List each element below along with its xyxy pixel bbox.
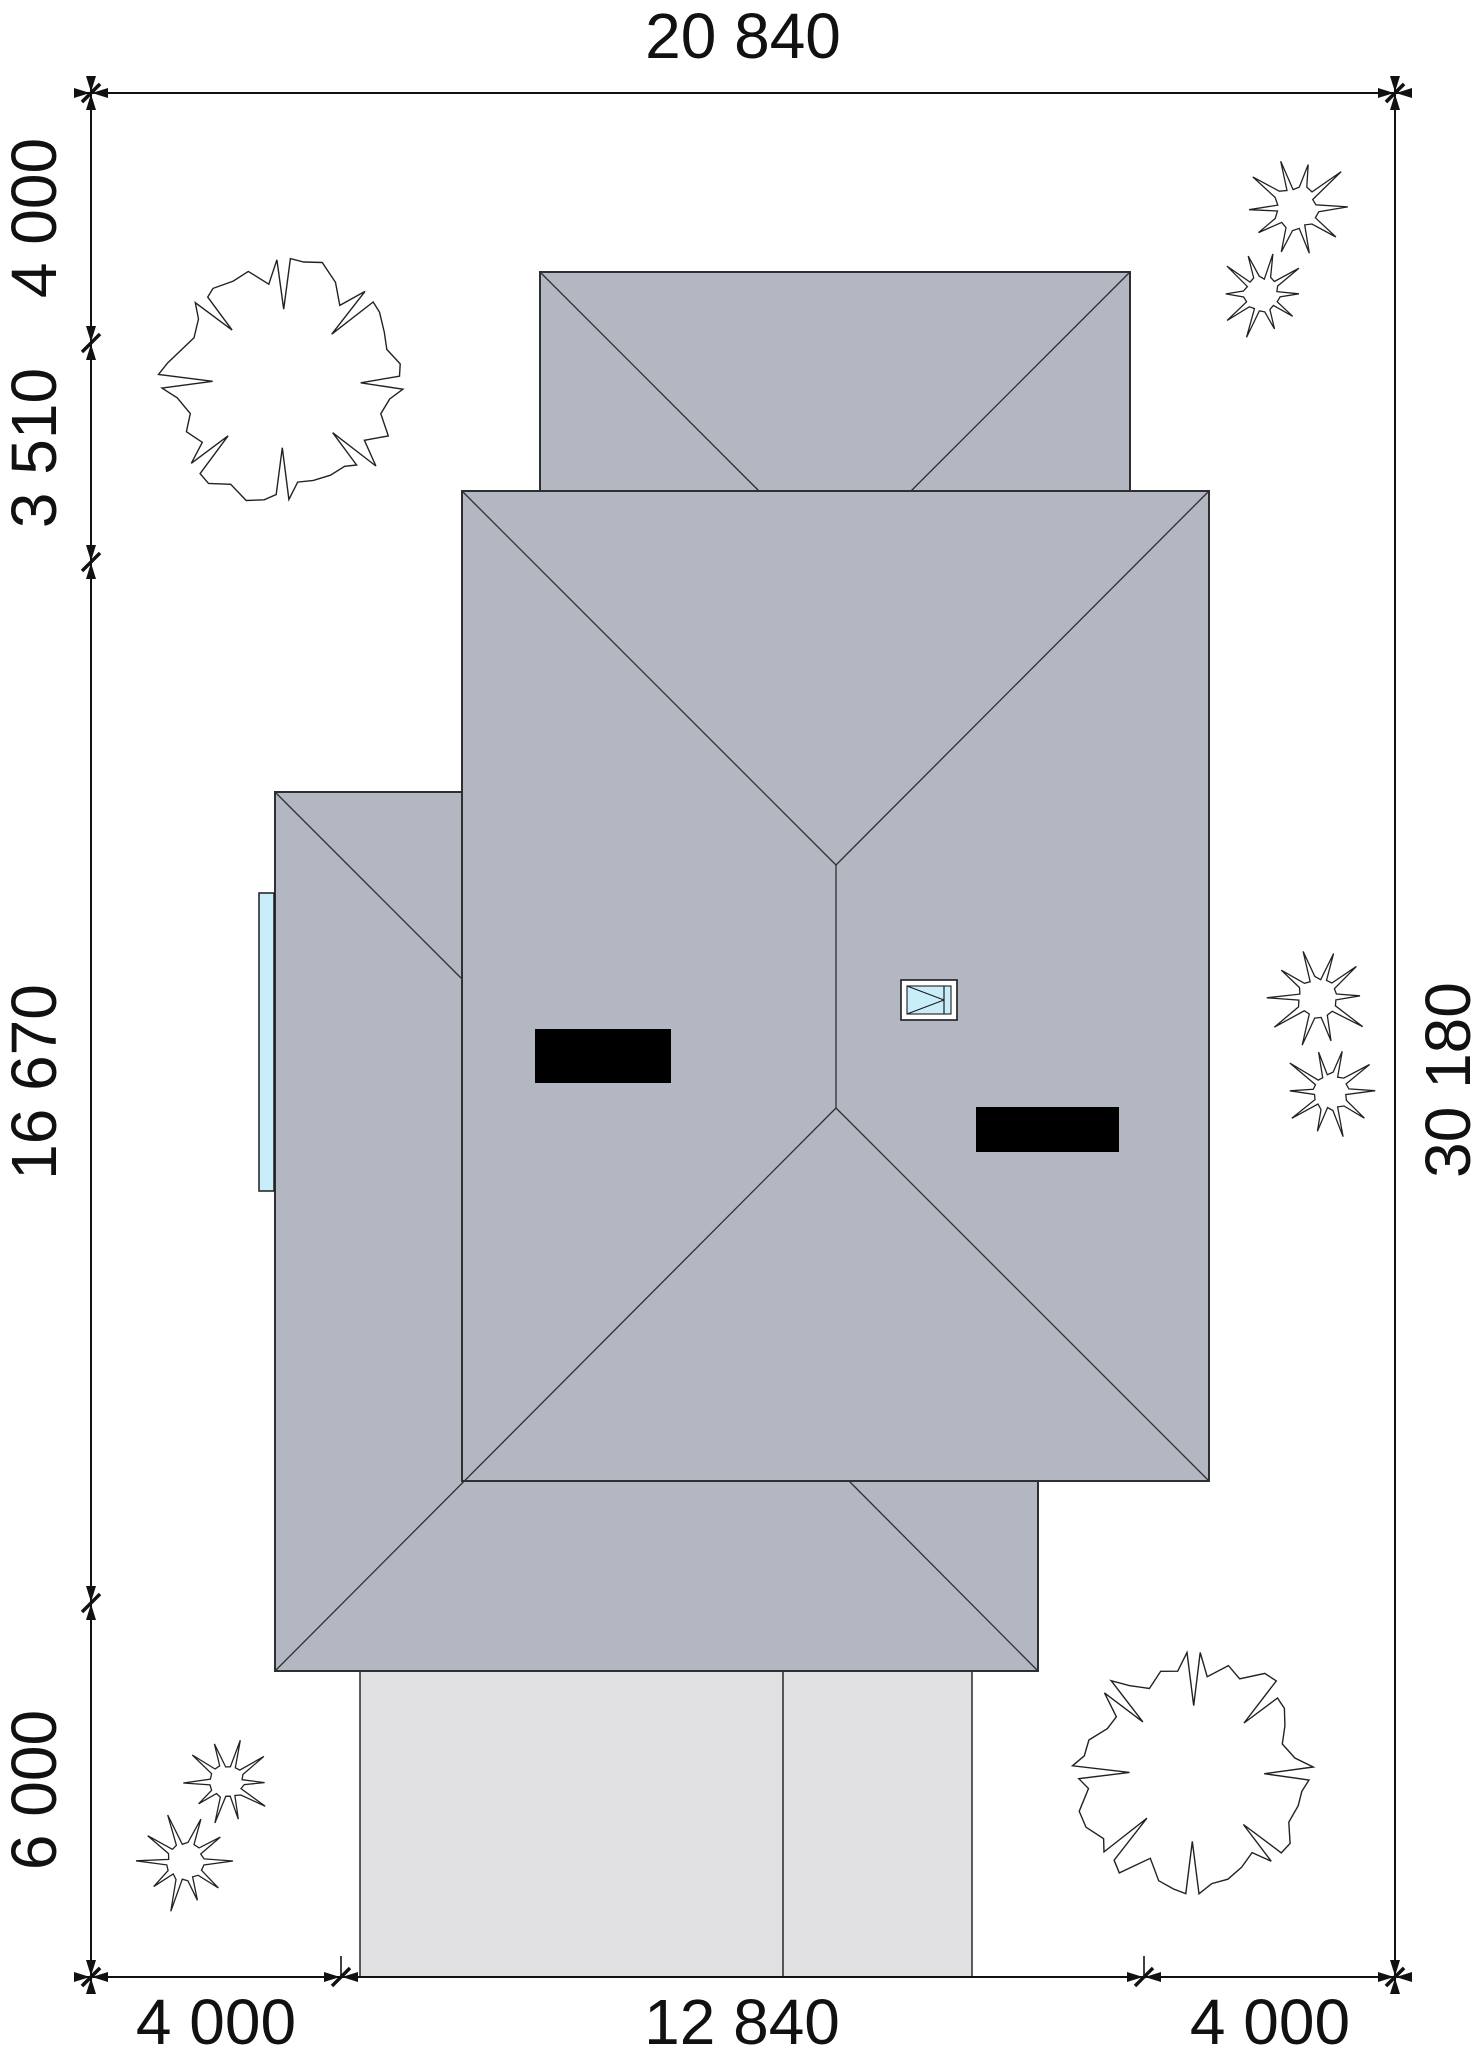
tree-symbol: [1073, 1653, 1314, 1894]
dimension-label: 12 840: [644, 1986, 840, 2058]
garage-roof: [540, 272, 1130, 491]
dimension-label: 3 510: [0, 368, 70, 528]
shrub-symbol: [1290, 1051, 1375, 1136]
dimension-label: 30 180: [1412, 982, 1484, 1178]
dimension-label: 16 670: [0, 984, 70, 1180]
dimension-label: 4 000: [1190, 1986, 1350, 2058]
dimension-label: 4 000: [0, 138, 70, 298]
chimney: [535, 1029, 671, 1083]
dimension-label: 20 840: [645, 0, 841, 72]
shrub-symbol: [1249, 161, 1348, 253]
dimension-label: 6 000: [0, 1710, 70, 1870]
driveway-area: [360, 1670, 972, 1977]
site-plan: 20 8404 00012 8404 0004 0003 51016 6706 …: [0, 0, 1484, 2068]
shrub-symbol: [136, 1815, 233, 1911]
dimension-label: 4 000: [136, 1986, 296, 2058]
site-plan-svg: 20 8404 00012 8404 0004 0003 51016 6706 …: [0, 0, 1484, 2068]
shrub-symbol: [1226, 254, 1299, 338]
shrub-symbol: [1267, 951, 1363, 1045]
window-strip: [259, 893, 274, 1191]
shrub-symbol: [183, 1740, 265, 1823]
chimney: [976, 1107, 1119, 1152]
tree-symbol: [159, 259, 403, 501]
